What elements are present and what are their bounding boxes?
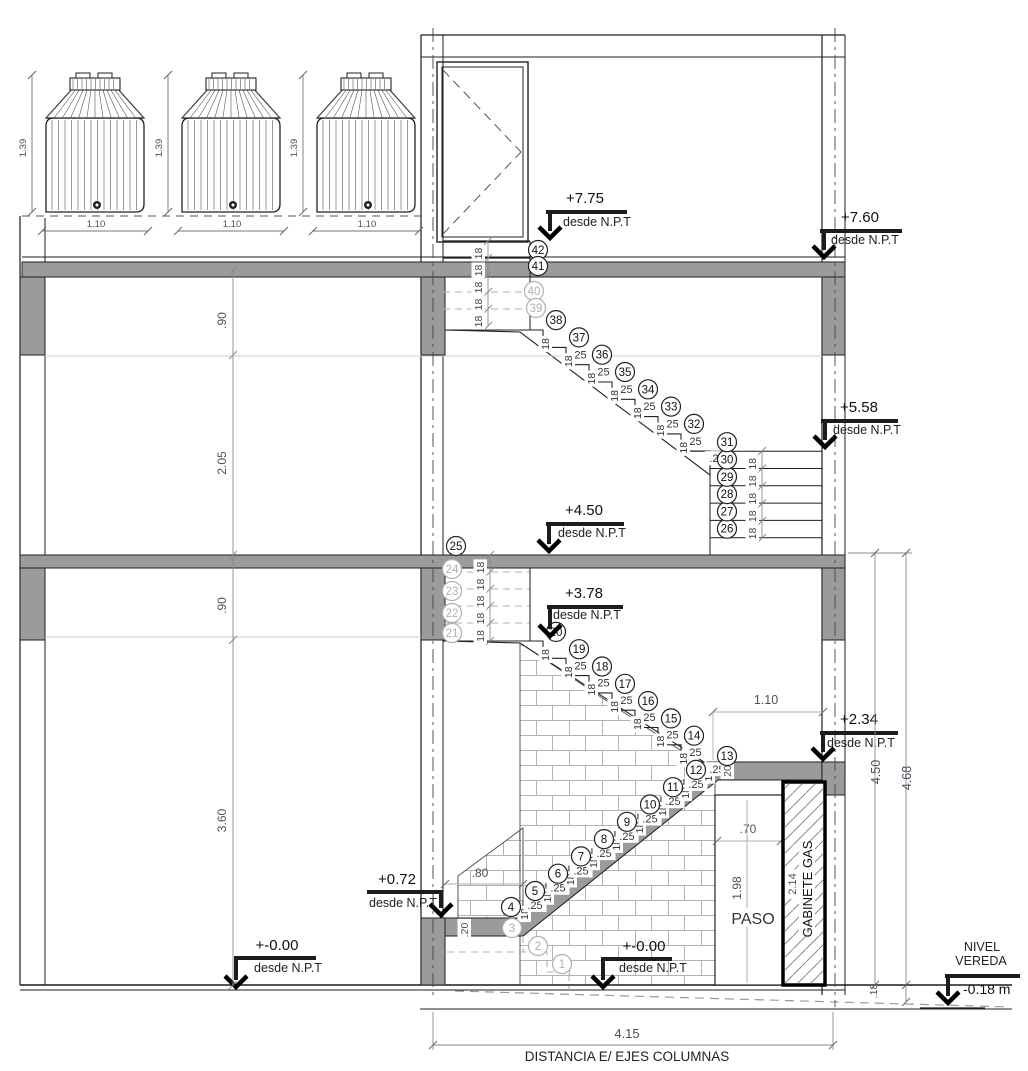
step-number-18: 18: [593, 657, 612, 676]
dim-label: 38: [550, 315, 563, 327]
dim-label: 37: [573, 332, 586, 344]
vereda-label: VEREDA: [955, 954, 1007, 968]
dim-label: 3: [509, 923, 515, 935]
step-number-27: 27: [718, 502, 737, 521]
bottom-dim: 4.15DISTANCIA E/ EJES COLUMNAS: [429, 1012, 837, 1064]
dim-label: 18: [747, 510, 759, 522]
dim-label: 41: [532, 261, 545, 273]
step-number-24: 24: [443, 560, 462, 579]
dim-label: 9: [624, 817, 630, 829]
dim-label: 24: [446, 564, 459, 576]
dim-label: 1: [559, 959, 565, 971]
tank-width-label: 1.10: [87, 219, 106, 230]
landing-width-top: 1.10: [754, 693, 778, 707]
step-number-28: 28: [718, 485, 737, 504]
nivel-label: NIVEL: [964, 940, 1000, 954]
dim-label: 28: [721, 489, 734, 501]
right-dim-468: 4.68: [900, 766, 914, 790]
bottom-dim-value: 4.15: [614, 1026, 639, 1041]
left-dim: .90: [215, 597, 229, 614]
step-number-36: 36: [593, 345, 612, 364]
elevation-value: +3.78: [565, 585, 603, 602]
dim-label: 18: [473, 282, 485, 294]
dim-label: 42: [532, 245, 545, 257]
step-number-12: 12: [687, 760, 706, 779]
dim-label: 18: [475, 562, 487, 574]
left-dim: 3.60: [215, 808, 229, 832]
dim-label: .25: [688, 779, 703, 791]
step-number-34: 34: [639, 380, 658, 399]
dim-label: .25: [527, 900, 542, 912]
step-number-15: 15: [662, 709, 681, 728]
dim-label: 18: [475, 630, 487, 642]
step-number-23: 23: [443, 582, 462, 601]
step-number-3: 3: [503, 919, 522, 938]
step-number-14: 14: [685, 726, 704, 745]
dim-label: 23: [446, 586, 459, 598]
elevation-value: +4.50: [565, 502, 603, 519]
elevation-note: desde N.P.T: [831, 233, 899, 247]
dim-label: 10: [644, 800, 657, 812]
step-number-4: 4: [502, 898, 521, 917]
dim-label: .25: [550, 883, 565, 895]
dim-label: 7: [578, 851, 584, 863]
landing-thickness: .20: [459, 923, 471, 938]
elevation-note: desde N.P.T: [619, 961, 687, 975]
dim-label: 18: [473, 248, 485, 260]
step-number-6: 6: [549, 864, 568, 883]
landing-thickness: 20: [722, 765, 734, 777]
elevation-marker-+4.50: +4.50desde N.P.T: [538, 502, 626, 551]
step-number-1: 1: [553, 955, 572, 974]
dim-label: 22: [446, 608, 459, 620]
dim-label: 18: [563, 666, 575, 678]
landing-width-low: .80: [472, 866, 489, 880]
step-number-22: 22: [443, 604, 462, 623]
dim-label: 27: [721, 506, 734, 518]
dim-label: 19: [573, 644, 586, 656]
dim-label: 18: [473, 265, 485, 277]
dim-label: 33: [665, 402, 678, 414]
step-number-35: 35: [616, 363, 635, 382]
elevation-value: +0.72: [378, 871, 416, 888]
elevation-marker-+-0.00: +-0.00desde N.P.T: [225, 937, 322, 987]
dim-label: .25: [573, 865, 588, 877]
step-number-2: 2: [529, 937, 548, 956]
tank-height-label: 1.39: [154, 139, 165, 158]
dim-label: 18: [678, 442, 690, 454]
dim-label: .25: [665, 796, 680, 808]
dim-label: 31: [721, 437, 734, 449]
left-dim-chain: .902.05.903.60: [215, 266, 237, 989]
dim-label: 18: [586, 684, 598, 696]
step-number-11: 11: [664, 778, 683, 797]
dim-label: 18: [655, 425, 667, 437]
dim-label: .25: [619, 831, 634, 843]
dim-label: 13: [721, 751, 734, 763]
dim-label: 11: [667, 782, 679, 794]
elevation-value: +-0.00: [623, 938, 666, 955]
dim-label: 34: [642, 384, 655, 396]
paso-opening: .701.98PASO: [713, 795, 785, 985]
elevation-value: +2.34: [840, 711, 878, 728]
elevation-marker-+3.78: +3.78desde N.P.T: [539, 585, 623, 636]
dim-label: 18: [747, 528, 759, 540]
dim-label: 15: [665, 713, 678, 725]
right-dim-chain: 4.504.68.18: [848, 549, 914, 1006]
dim-label: 18: [609, 701, 621, 713]
dim-label: 21: [446, 628, 459, 640]
dim-label: 32: [688, 419, 701, 431]
dim-label: 18: [655, 736, 667, 748]
left-dim: .90: [215, 312, 229, 329]
water-tank-3: 1.391.10: [289, 71, 423, 235]
dim-label: 18: [586, 373, 598, 385]
step-number-39: 39: [527, 299, 546, 318]
elevation-note: desde N.P.T: [553, 608, 621, 622]
dim-label: 18: [609, 390, 621, 402]
step-number-30: 30: [718, 450, 737, 469]
dim-label: 17: [619, 679, 632, 691]
dim-label: 40: [528, 286, 541, 298]
step-number-32: 32: [685, 414, 704, 433]
step-number-40: 40: [525, 282, 544, 301]
dim-label: 14: [688, 731, 701, 743]
gabinete-height-label: 2.14: [787, 873, 799, 894]
dim-label: 18: [540, 338, 552, 350]
dim-label: 18: [747, 475, 759, 487]
dim-label: 35: [619, 367, 632, 379]
elevation-value: +-0.00: [256, 937, 299, 954]
bottom-caption: DISTANCIA E/ EJES COLUMNAS: [525, 1049, 730, 1064]
stair-section-drawing: .701.98PASO2.14GABINETE GAS1.391.101.391…: [0, 0, 1028, 1071]
step-number-21: 21: [443, 624, 462, 643]
step-number-5: 5: [526, 882, 545, 901]
water-tank-2: 1.391.10: [154, 71, 288, 235]
section-canvas: .701.98PASO2.14GABINETE GAS1.391.101.391…: [0, 0, 1028, 1071]
elevation-note: desde N.P.T: [369, 896, 437, 910]
dim-label: .25: [642, 814, 657, 826]
elevation-value: +7.60: [841, 209, 879, 226]
dim-label: 30: [721, 455, 734, 467]
gabinete-label: GABINETE GAS: [800, 840, 815, 937]
elevation-note: desde N.P.T: [827, 736, 895, 750]
elevation-note: desde N.P.T: [558, 526, 626, 540]
tank-width-label: 1.10: [223, 219, 242, 230]
dim-label: 18: [632, 407, 644, 419]
step-number-9: 9: [618, 812, 637, 831]
elevation-marker-+7.75: +7.75desde N.P.T: [539, 190, 631, 238]
step-number-17: 17: [616, 674, 635, 693]
elevation-note: desde N.P.T: [833, 423, 901, 437]
elevation-marker-+7.60: +7.60desde N.P.T: [813, 209, 902, 257]
step-number-25: 25: [447, 537, 466, 556]
left-dim: 2.05: [215, 451, 229, 475]
step-number-41: 41: [529, 257, 548, 276]
step-number-8: 8: [595, 830, 614, 849]
dim-label: 18: [475, 579, 487, 591]
step-number-19: 19: [570, 640, 589, 659]
dim-label: 18: [678, 753, 690, 765]
dim-label: .25: [596, 848, 611, 860]
elevation-note: desde N.P.T: [563, 215, 631, 229]
dim-label: 2: [535, 941, 541, 953]
dim-label: 29: [721, 472, 734, 484]
tank-width-label: 1.10: [358, 219, 377, 230]
dim-label: 26: [721, 524, 734, 536]
sidewalk-level-marker: NIVELVEREDA-0.18 m: [920, 940, 1020, 1008]
dim-label: 18: [563, 355, 575, 367]
drawing-root: .701.98PASO2.14GABINETE GAS1.391.101.391…: [18, 28, 1020, 1064]
dim-label: 18: [473, 316, 485, 328]
dim-label: 36: [596, 350, 609, 362]
step-number-38: 38: [547, 311, 566, 330]
dim-label: 18: [632, 718, 644, 730]
dim-label: 8: [601, 834, 607, 846]
gabinete-gas: 2.14GABINETE GAS: [783, 782, 825, 985]
dim-label: 18: [475, 596, 487, 608]
dim-label: 6: [555, 869, 561, 881]
step-number-10: 10: [641, 795, 660, 814]
elevation-marker-+2.34: +2.34desde N.P.T: [812, 711, 898, 759]
dim-label: 18: [473, 299, 485, 311]
tank-height-label: 1.39: [18, 139, 29, 158]
dim-label: 4: [508, 902, 515, 914]
dim-label: 18: [747, 458, 759, 470]
dim-label: 39: [530, 303, 543, 315]
elevation-value: +7.75: [566, 190, 604, 207]
dim-label: 18: [596, 662, 609, 674]
elevation-value: +5.58: [840, 399, 878, 416]
right-dim-450: 4.50: [869, 760, 883, 784]
dim-label: 16: [642, 696, 655, 708]
step-number-26: 26: [718, 519, 737, 538]
elevation-note: desde N.P.T: [254, 961, 322, 975]
dim-label: 18: [475, 613, 487, 625]
paso-width-label: .70: [740, 822, 757, 836]
step-number-37: 37: [570, 328, 589, 347]
elevation-marker-+5.58: +5.58desde N.P.T: [814, 399, 901, 447]
step-number-16: 16: [639, 692, 658, 711]
water-tank-1: 1.391.10: [18, 71, 152, 235]
tank-height-label: 1.39: [289, 139, 300, 158]
elevation-marker-+0.72: +0.72desde N.P.T: [367, 871, 452, 915]
roof-door: [437, 62, 528, 242]
step-number-31: 31: [718, 433, 737, 452]
paso-label: PASO: [731, 911, 774, 928]
right-dim-18: .18: [868, 984, 880, 999]
step-number-33: 33: [662, 397, 681, 416]
step-number-7: 7: [572, 847, 591, 866]
dim-label: 12: [690, 765, 703, 777]
dim-label: 18: [747, 493, 759, 505]
step-number-29: 29: [718, 467, 737, 486]
dim-label: 18: [540, 649, 552, 661]
step-number-13: 13: [718, 747, 737, 766]
paso-height-label: 1.98: [730, 876, 744, 900]
sidewalk-value: -0.18 m: [963, 981, 1010, 997]
dim-label: 25: [450, 541, 463, 553]
dim-label: 5: [532, 886, 538, 898]
